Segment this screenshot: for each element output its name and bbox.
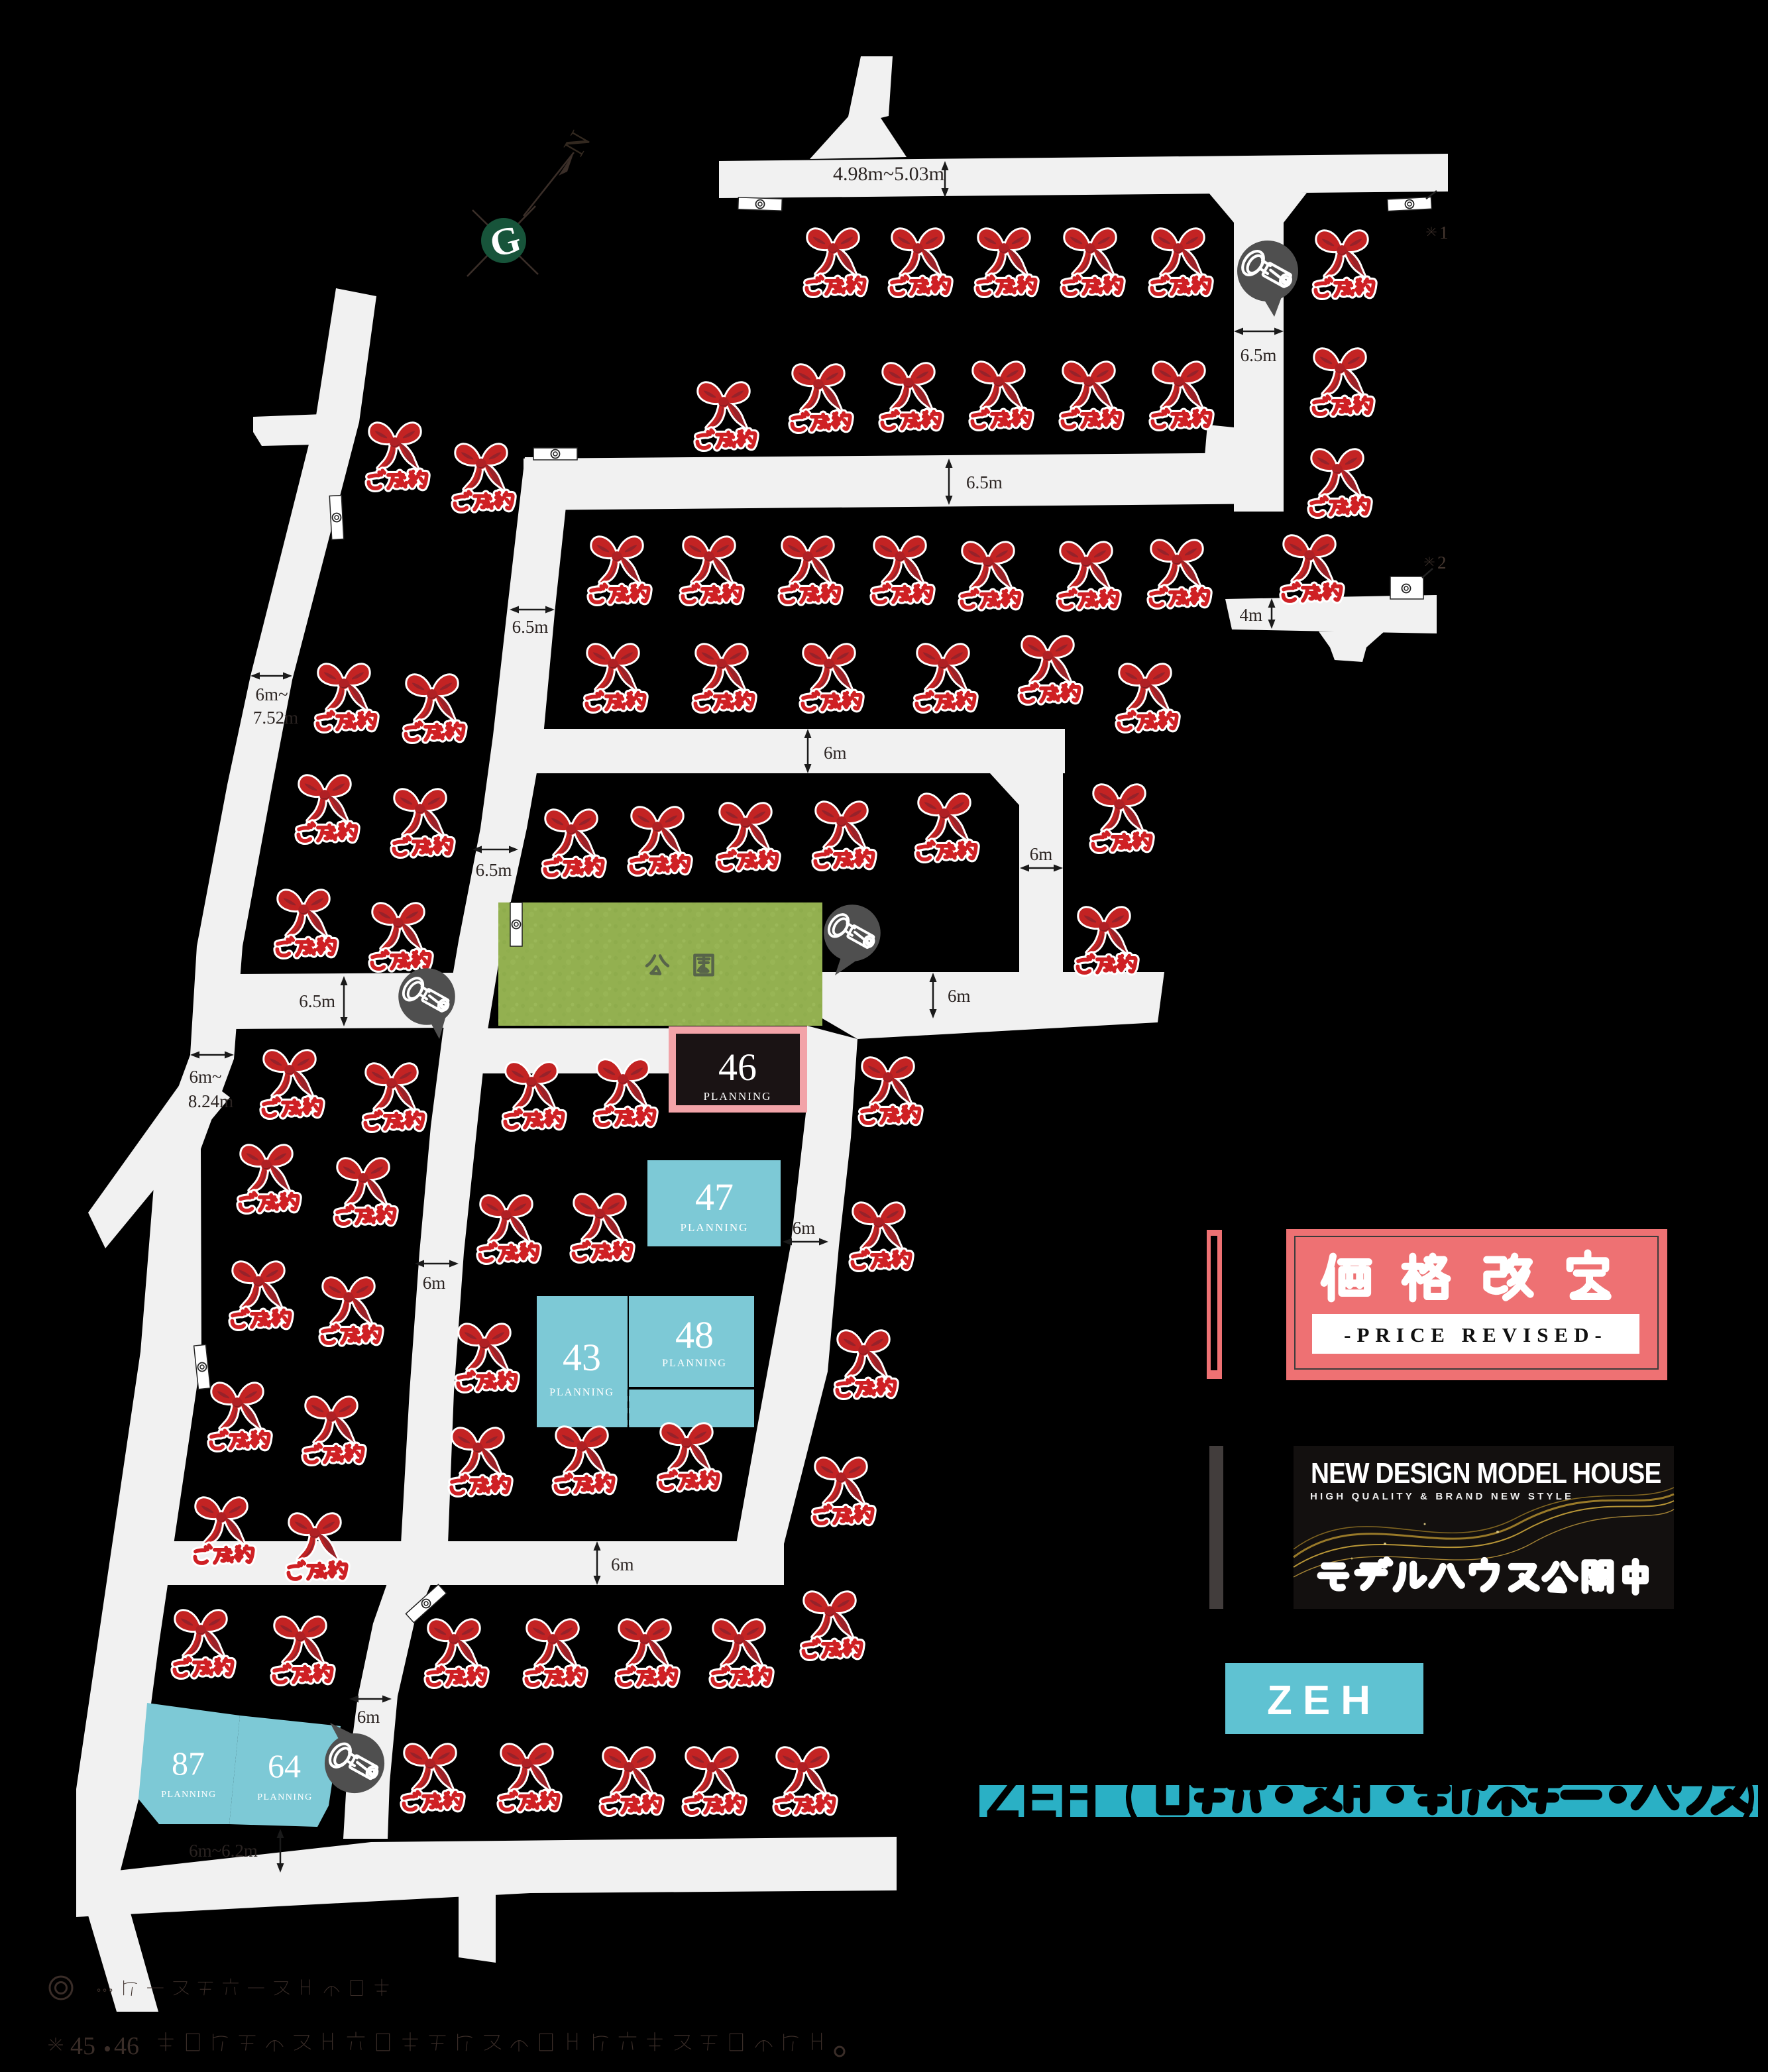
svg-text:6m~: 6m~ bbox=[255, 684, 288, 704]
svg-text:8.24m: 8.24m bbox=[188, 1091, 233, 1111]
svg-text:6m: 6m bbox=[357, 1707, 380, 1727]
svg-text:-PRICE REVISED-: -PRICE REVISED- bbox=[1344, 1323, 1608, 1346]
svg-text:6.5m: 6.5m bbox=[299, 991, 335, 1011]
svg-text:PLANNING: PLANNING bbox=[704, 1090, 772, 1103]
svg-text:6.5m: 6.5m bbox=[1241, 345, 1277, 365]
svg-text:1: 1 bbox=[1439, 223, 1449, 243]
svg-text:7.52m: 7.52m bbox=[253, 708, 298, 728]
svg-text:45: 45 bbox=[70, 2032, 95, 2060]
svg-text:6m: 6m bbox=[824, 743, 847, 763]
svg-text:6m: 6m bbox=[948, 986, 971, 1006]
svg-text:6m: 6m bbox=[611, 1554, 634, 1574]
svg-text:46: 46 bbox=[114, 2032, 139, 2060]
svg-text:PLANNING: PLANNING bbox=[681, 1221, 749, 1234]
svg-text:PLANNING: PLANNING bbox=[662, 1358, 727, 1369]
svg-text:47: 47 bbox=[695, 1175, 734, 1219]
svg-text:6m~6.2m: 6m~6.2m bbox=[189, 1841, 258, 1861]
svg-text:43: 43 bbox=[563, 1336, 601, 1379]
svg-text:HIGH QUALITY & BRAND NEW STYLE: HIGH QUALITY & BRAND NEW STYLE bbox=[1310, 1491, 1574, 1502]
svg-text:46: 46 bbox=[718, 1046, 757, 1089]
svg-text:ZEH: ZEH bbox=[1267, 1678, 1381, 1723]
svg-text:PLANNING: PLANNING bbox=[549, 1387, 614, 1398]
svg-text:PLANNING: PLANNING bbox=[257, 1792, 313, 1802]
svg-text:87: 87 bbox=[172, 1745, 205, 1782]
svg-text:6.5m: 6.5m bbox=[966, 472, 1003, 492]
svg-text:4.98m~5.03m: 4.98m~5.03m bbox=[833, 163, 944, 185]
svg-text:48: 48 bbox=[675, 1313, 714, 1356]
svg-text:NEW DESIGN MODEL HOUSE: NEW DESIGN MODEL HOUSE bbox=[1311, 1456, 1661, 1490]
svg-text:6m~: 6m~ bbox=[189, 1067, 221, 1087]
svg-text:4m: 4m bbox=[1239, 605, 1262, 625]
svg-text:64: 64 bbox=[268, 1747, 301, 1784]
svg-text:6m: 6m bbox=[793, 1218, 816, 1238]
svg-text:6m: 6m bbox=[423, 1273, 446, 1293]
svg-text:2: 2 bbox=[1437, 553, 1447, 573]
svg-text:6.5m: 6.5m bbox=[476, 860, 512, 880]
svg-text:ZEH: ZEH bbox=[985, 1766, 1099, 1829]
svg-text:6m: 6m bbox=[1030, 844, 1053, 864]
svg-text:6.5m: 6.5m bbox=[512, 617, 549, 637]
svg-text:PLANNING: PLANNING bbox=[161, 1790, 217, 1800]
